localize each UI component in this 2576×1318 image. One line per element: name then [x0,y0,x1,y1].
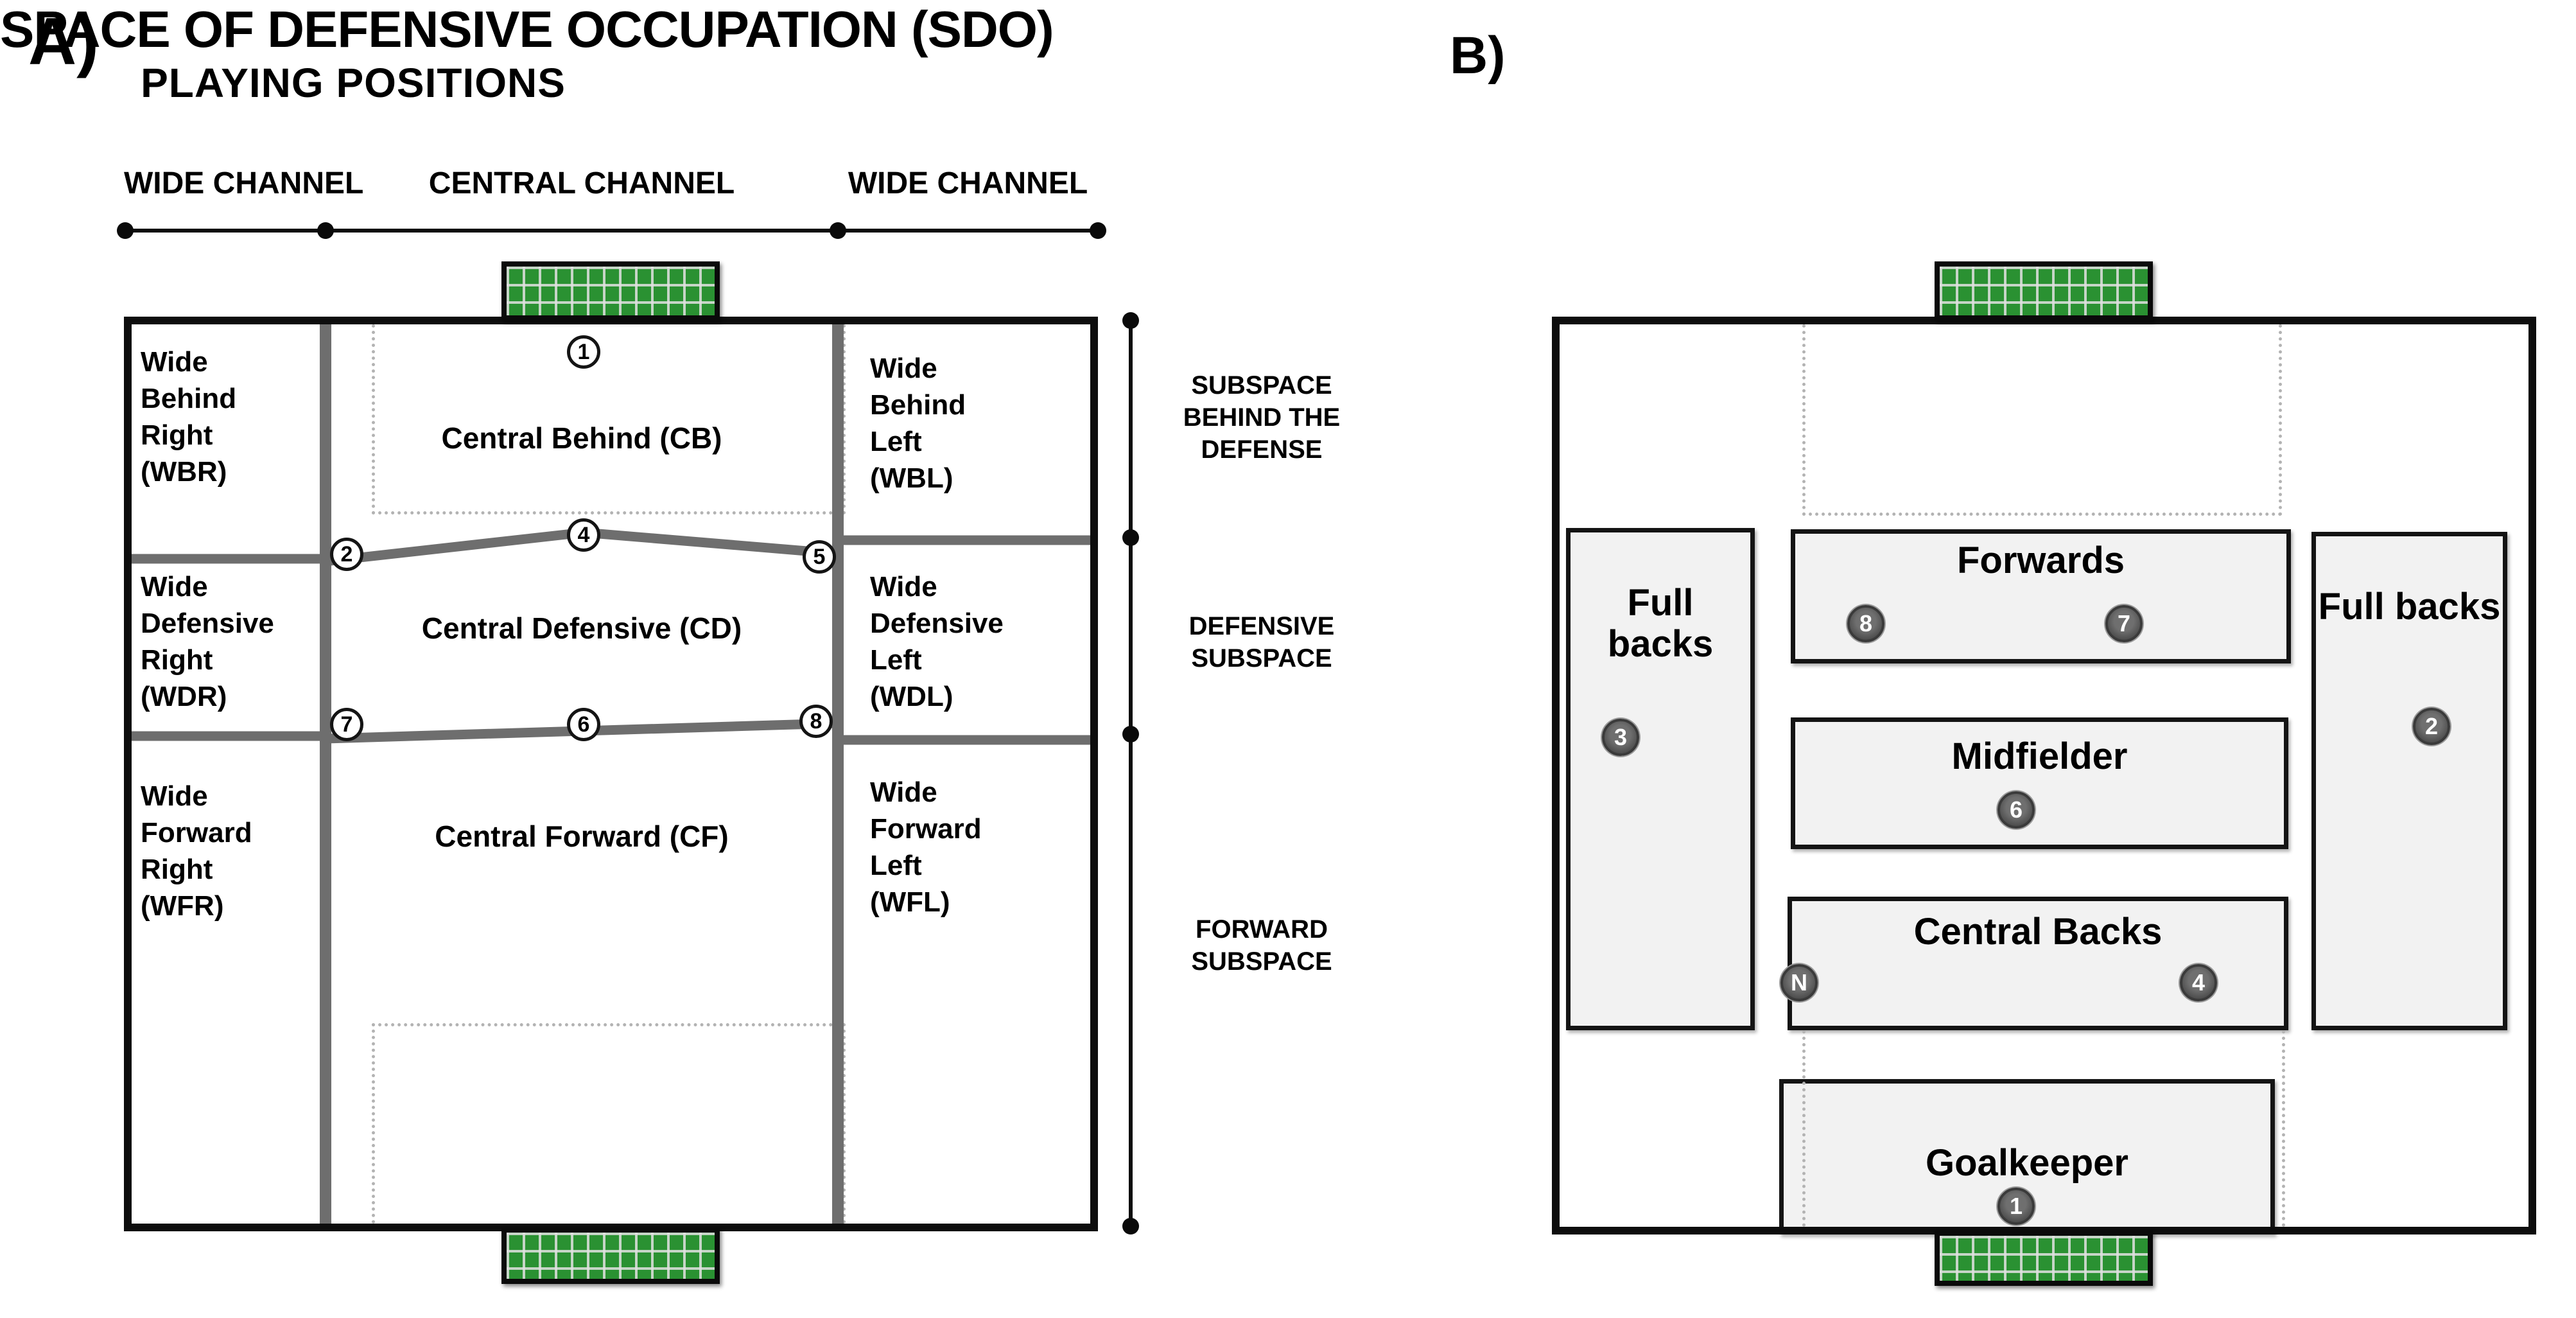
goal-top-a [501,261,720,321]
zone-wfl: Wide Forward Left (WFL) [870,774,1088,920]
zone-wbl-line1: Wide [870,350,1088,387]
channel-label-central: CENTRAL CHANNEL [326,166,838,201]
zone-wfl-line1: Wide [870,774,1088,811]
badge-1: 1 [1997,1188,2035,1225]
marker-7: 7 [330,708,363,741]
badge-7: 7 [2105,605,2143,642]
subspace-bracket-line [1129,319,1133,1227]
goal-bottom-b [1935,1231,2153,1286]
zone-wbl-line3: Left [870,423,1088,460]
zone-wfr-line3: Right [141,851,324,888]
goal-top-b [1935,261,2153,321]
position-box-central-backs: Central Backs [1788,897,2288,1030]
marker-8: 8 [799,705,833,738]
position-box-fullbacks-right: Full backs [2311,532,2507,1030]
bracket-dot-4 [1122,1218,1139,1235]
zone-wdl-line2: Defensive [870,605,1088,642]
badge-n: N [1780,964,1818,1001]
zone-wdr-line2: Defensive [141,605,324,642]
central-backs-label: Central Backs [1792,911,2284,953]
zone-wbr-line4: (WBR) [141,453,320,490]
zone-wbr: Wide Behind Right (WBR) [141,344,320,490]
channel-dot-2 [317,222,334,239]
panel-b-letter: B) [1450,26,1506,86]
marker-6: 6 [567,708,600,741]
forwards-label: Forwards [1795,540,2286,581]
zone-wfl-line3: Left [870,847,1088,884]
fullbacks-right-label: Full backs [2316,586,2503,628]
figure-canvas: A) SPACE OF DEFENSIVE OCCUPATION (SDO) W… [0,0,2576,1318]
channel-dot-3 [830,222,846,239]
subspace-behind-label: SUBSPACE BEHIND THE DEFENSE [1153,369,1371,466]
zone-wbr-line3: Right [141,417,320,453]
goal-bottom-a [501,1227,720,1284]
zone-wfr-line1: Wide [141,778,324,814]
zone-wdr: Wide Defensive Right (WDR) [141,568,324,715]
panel-a-letter: A) [28,4,99,80]
marker-2: 2 [330,538,363,571]
badge-8: 8 [1847,605,1884,642]
zone-wbr-line2: Behind [141,380,320,417]
position-box-midfielder: Midfielder [1791,717,2288,849]
field-positions: Full backs Forwards Full backs Midfielde… [1552,317,2536,1235]
penalty-line-bottom-right-b [2282,1030,2285,1227]
field-sdo: Wide Behind Right (WBR) Wide Defensive R… [124,317,1098,1231]
panel-b-title: PLAYING POSITIONS [0,59,706,107]
zone-wdr-line3: Right [141,642,324,678]
bracket-dot-2 [1122,529,1139,546]
zone-wbl-line4: (WBL) [870,460,1088,496]
badge-6: 6 [1997,791,2035,829]
marker-4: 4 [567,518,600,552]
midfielder-label: Midfielder [1795,736,2284,777]
zone-wdr-line4: (WDR) [141,678,324,715]
position-box-forwards: Forwards [1791,529,2291,663]
zone-wbl-line2: Behind [870,387,1088,423]
zone-wfr-line2: Forward [141,814,324,851]
zone-wbr-line1: Wide [141,344,320,380]
zone-wfr: Wide Forward Right (WFR) [141,778,324,924]
bracket-dot-1 [1122,312,1139,329]
badge-3: 3 [1602,719,1639,756]
bracket-dot-3 [1122,726,1139,742]
fullbacks-left-label: Full backs [1571,583,1750,665]
goalkeeper-label: Goalkeeper [1784,1143,2270,1184]
zone-wbl: Wide Behind Left (WBL) [870,350,1088,496]
channel-label-wide-left: WIDE CHANNEL [124,166,326,201]
badge-2: 2 [2413,708,2450,745]
marker-5: 5 [803,540,836,574]
subspace-forward-label: FORWARD SUBSPACE [1153,913,1371,978]
zone-cd: Central Defensive (CD) [326,611,838,646]
zone-wfl-line4: (WFL) [870,884,1088,920]
penalty-line-bottom-left-b [1802,1030,1806,1227]
zone-wdl-line3: Left [870,642,1088,678]
zone-wdl: Wide Defensive Left (WDL) [870,568,1088,715]
zone-wfl-line2: Forward [870,811,1088,847]
zone-wfr-line4: (WFR) [141,888,324,924]
penalty-box-top-b [1802,324,2282,516]
zone-wdl-line4: (WDL) [870,678,1088,715]
subspace-defensive-label: DEFENSIVE SUBSPACE [1153,610,1371,674]
channel-dot-1 [117,222,134,239]
zone-wdr-line1: Wide [141,568,324,605]
channel-label-wide-right: WIDE CHANNEL [838,166,1098,201]
position-box-fullbacks-left: Full backs [1566,528,1755,1030]
channel-axis-line [124,229,1098,233]
marker-1: 1 [567,335,600,369]
zone-cb: Central Behind (CB) [326,421,838,455]
zone-cf: Central Forward (CF) [326,819,838,854]
zone-wdl-line1: Wide [870,568,1088,605]
panel-a-title: SPACE OF DEFENSIVE OCCUPATION (SDO) [0,0,2576,59]
channel-dot-4 [1090,222,1106,239]
badge-4: 4 [2180,964,2217,1001]
